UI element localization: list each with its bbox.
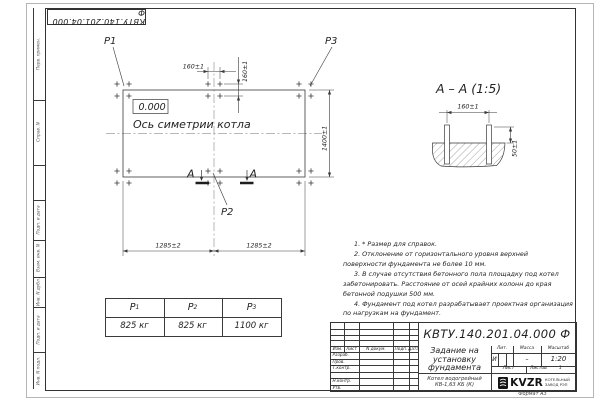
- tb-title-line3: фундамента: [428, 364, 481, 373]
- tb-product-line2: КВ-1,63 КБ (К): [435, 382, 474, 389]
- tb-line: [331, 329, 418, 330]
- note-1: 1. * Размер для справок.: [343, 240, 573, 250]
- tb-line: [359, 323, 360, 391]
- format-label: Формат А3: [490, 390, 575, 398]
- label-p1: P1: [104, 36, 116, 47]
- section-view-title: А – А (1:5): [435, 81, 501, 96]
- tb-drawing-title: Задание на установку фундамента: [418, 347, 491, 373]
- tb-sheet-label: Лист: [491, 366, 526, 373]
- section-letter-left: А: [186, 168, 195, 181]
- anchor-bolt-right: [487, 125, 492, 164]
- note-4: 4. Фундамент под котел разрабатывает про…: [343, 300, 573, 320]
- tb-doc-number: КВТУ.140.201.04.000 Ф: [418, 323, 576, 346]
- tb-line: [331, 335, 418, 336]
- label-p2: P2: [221, 207, 233, 218]
- tb-mass-header: Масса: [513, 346, 541, 353]
- tb-role-tkontr: Т.контр.: [333, 365, 359, 372]
- elevation-value: 0.000: [139, 102, 166, 113]
- p2-subscript: 2: [193, 305, 197, 311]
- section-cut-marks: [196, 170, 254, 183]
- p3-subscript: 3: [252, 305, 256, 311]
- tb-scale-header: Масштаб: [541, 346, 576, 353]
- p1-subscript: 1: [135, 305, 139, 311]
- load-value-p1: 825 кг: [106, 317, 163, 335]
- tb-sheets-label: Листов: [530, 367, 547, 372]
- dim-bolt-spacing-v: 160±1: [242, 61, 249, 82]
- center-lines: [106, 62, 322, 256]
- notes-block: 1. * Размер для справок. 2. Отклонение о…: [343, 240, 573, 319]
- tb-role-utv: Утв.: [333, 385, 359, 392]
- tb-line: [506, 353, 507, 366]
- kvzr-logo-icon: [498, 377, 508, 389]
- dimension-arrows: [123, 70, 331, 253]
- tb-mass-value: –: [513, 353, 541, 366]
- extension-lines: [123, 67, 334, 256]
- tb-line: [393, 323, 394, 391]
- load-table-header-p1: P1: [106, 299, 163, 316]
- dim-span-left: 1285±2: [155, 243, 180, 250]
- note-3: 3. В случае отсутствия бетонного пола пл…: [343, 270, 573, 300]
- section-dim-height: 50±1: [512, 140, 519, 157]
- load-table-header-p3: P3: [223, 299, 280, 316]
- tb-product-name: Котел водогрейный КВ-1,63 КБ (К): [418, 374, 491, 390]
- tb-line: [409, 323, 410, 391]
- tb-lit-header: Лит.: [491, 346, 513, 353]
- dim-span-right: 1285±2: [246, 243, 271, 250]
- dimension-lines: [123, 57, 330, 251]
- section-dim-width: 160±1: [457, 104, 478, 111]
- drawing-sheet: Перв. примен. Справ. N Подп. и дата Взам…: [0, 0, 600, 400]
- load-value-p2: 825 кг: [164, 317, 221, 335]
- tb-line: [331, 340, 418, 341]
- tb-line: [498, 353, 499, 366]
- kvzr-brand-subtext: КОТЕЛЬНЫЙ ЗАВОД РЭП: [545, 378, 570, 387]
- load-table-header-p2: P2: [164, 299, 221, 316]
- concrete-pad-hatched: [433, 143, 506, 167]
- tb-line: [526, 366, 527, 373]
- load-table: P1 P2 P3 825 кг 825 кг 1100 кг: [105, 298, 282, 337]
- title-block: Изм. Лист N докум. Подп. Дата Разраб. Пр…: [330, 322, 577, 392]
- anchor-bolt-left: [445, 125, 450, 164]
- section-extension-lines: [447, 110, 514, 143]
- load-value-p3: 1100 кг: [223, 317, 280, 335]
- note-2: 2. Отклонение от горизонтального уровня …: [343, 250, 573, 270]
- tb-brand-cell: KVZR КОТЕЛЬНЫЙ ЗАВОД РЭП: [492, 374, 576, 391]
- dim-foundation-height: 1400±1: [322, 126, 329, 151]
- tb-sheets-cell: Листов 1: [530, 366, 574, 373]
- tb-col-data: Дата: [409, 346, 418, 352]
- kvzr-sub-line2: ЗАВОД РЭП: [545, 383, 570, 388]
- label-p3: P3: [325, 36, 337, 47]
- tb-col-ndoc: N докум.: [359, 346, 393, 352]
- tb-sheets-value: 1: [559, 367, 562, 372]
- kvzr-brand-text: KVZR: [510, 377, 543, 389]
- dim-bolt-spacing-h: 160±1: [183, 64, 204, 71]
- tb-line: [331, 372, 418, 373]
- section-letter-right: А: [249, 168, 258, 181]
- tb-lit-value: И: [491, 353, 498, 366]
- tb-col-podp: Подп.: [393, 346, 409, 352]
- tb-scale-value: 1:20: [541, 353, 576, 366]
- axis-caption: Ось симетрии котла: [133, 118, 251, 131]
